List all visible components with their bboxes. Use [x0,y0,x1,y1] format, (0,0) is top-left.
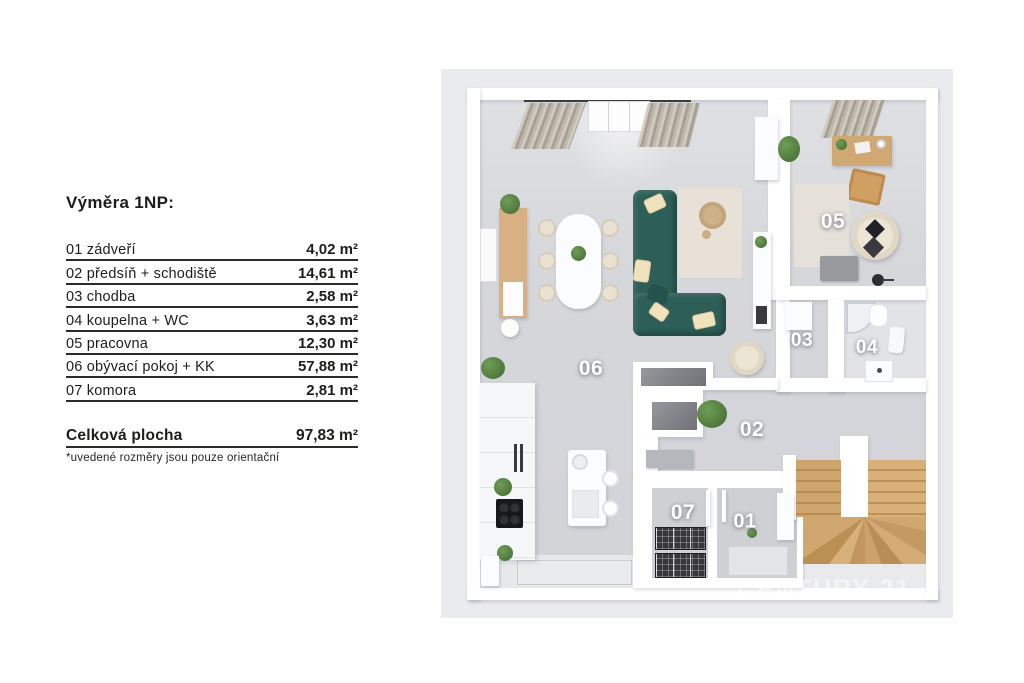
cooktop [496,499,523,528]
room-label-02: 02 [740,418,764,442]
dining-chair [601,252,619,270]
doormat [728,546,788,576]
dining-chair [538,252,556,270]
desk-chair [846,168,886,206]
footstool [820,256,858,281]
room-name: 03 chodba [66,289,136,305]
desk-papers [854,141,870,154]
room-area: 12,30 m² [298,335,358,352]
room-area: 57,88 m² [298,358,358,375]
room-label-01: 01 [733,511,756,534]
door-leaf [706,490,710,526]
desk-plant [836,139,847,150]
room-name: 01 zádveří [66,242,136,258]
kitchen-cabinet [481,556,499,586]
stairs-flight-left [796,460,841,517]
side-table [501,319,519,337]
plant [500,194,520,214]
room-area: 2,81 m² [306,382,358,399]
room-area: 4,02 m² [306,241,358,258]
area-row: 01 zádveří 4,02 m² [66,238,358,261]
kitchen-counter [480,383,535,560]
total-area: 97,83 m² [296,427,358,445]
plant [755,236,767,248]
area-row: 02 předsíň + schodiště 14,61 m² [66,261,358,284]
room-name: 06 obývací pokoj + KK [66,359,215,375]
entry-panel [777,493,794,540]
total-row: Celková plocha 97,83 m² [66,424,358,448]
wall-outer-top [467,88,938,100]
toilet [869,304,888,327]
disclaimer-note: *uvedené rozměry jsou pouze orientační [66,452,358,464]
sink-drain [877,368,882,373]
room-area: 14,61 m² [298,265,358,282]
window-pane-line [629,101,630,132]
pouf [730,341,764,375]
sofa-pillow [633,259,652,283]
area-legend: Výměra 1NP: 01 zádveří 4,02 m² 02 předsí… [66,193,358,464]
century21-watermark: CENTURY 21 [737,575,911,604]
area-row: 04 koupelna + WC 3,63 m² [66,308,358,331]
sink [572,454,588,470]
picture-frame [480,228,497,282]
stairs-flight-right [868,460,926,517]
dining-chair [601,219,619,237]
stairs-winders [803,517,926,564]
room-name: 02 předsíň + schodiště [66,266,217,282]
curtain-right [637,103,700,147]
dining-table [556,214,601,309]
floor-lamp-arm [882,279,894,281]
dining-chair [538,219,556,237]
island-inset [572,490,599,518]
plant [494,478,512,496]
dining-chair [601,284,619,302]
room-area: 2,58 m² [306,288,358,305]
room-label-03: 03 [791,330,813,352]
area-row: 06 obývací pokoj + KK 57,88 m² [66,355,358,378]
room-label-05: 05 [821,210,845,234]
wall-hall-top [713,378,778,390]
legend-heading: Výměra 1NP: [66,193,358,213]
plant [778,136,800,162]
room-name: 07 komora [66,383,136,399]
entry-mat [517,560,632,585]
niche-shelf [641,368,706,386]
dining-chair [538,284,556,302]
sideboard-doors [503,282,523,316]
bar-stool [602,470,619,487]
plant [481,357,505,379]
tv [756,306,767,324]
wire-baskets [655,553,706,578]
bench [646,450,693,468]
coffee-table [699,202,726,229]
hall-cabinet [785,302,812,330]
plant [697,400,727,428]
table-centerpiece [571,246,586,261]
towel [888,326,906,353]
window-pane-line [608,101,609,132]
desk-lamp [876,139,886,149]
room-name: 05 pracovna [66,336,148,352]
room-label-06: 06 [579,357,603,381]
door-leaf [722,490,726,522]
wall-outer-right [926,88,938,600]
room-label-07: 07 [671,501,695,525]
bar-stool [602,500,619,517]
plant [497,545,513,561]
area-table: 01 zádveří 4,02 m² 02 předsíň + schodišt… [66,238,358,402]
stair-spine-wall [840,436,868,519]
wire-baskets [655,527,706,550]
room-name: 04 koupelna + WC [66,313,189,329]
room-area: 3,63 m² [306,312,358,329]
total-label: Celková plocha [66,427,183,445]
area-row: 03 chodba 2,58 m² [66,285,358,308]
coffee-table-small [702,230,711,239]
cabinet-handle [520,444,523,472]
wardrobe [755,117,778,180]
wall-outer-left [467,88,480,600]
area-row: 05 pracovna 12,30 m² [66,332,358,355]
wall-office-bottom [776,286,926,300]
area-row: 07 komora 2,81 m² [66,378,358,401]
niche-shelf [652,402,697,430]
wall-bath-bottom [776,378,926,392]
cabinet-handle [514,444,517,472]
room-label-04: 04 [856,337,878,359]
floor-plan: 06 02 05 03 04 07 01 CENTURY 21 [441,69,953,618]
